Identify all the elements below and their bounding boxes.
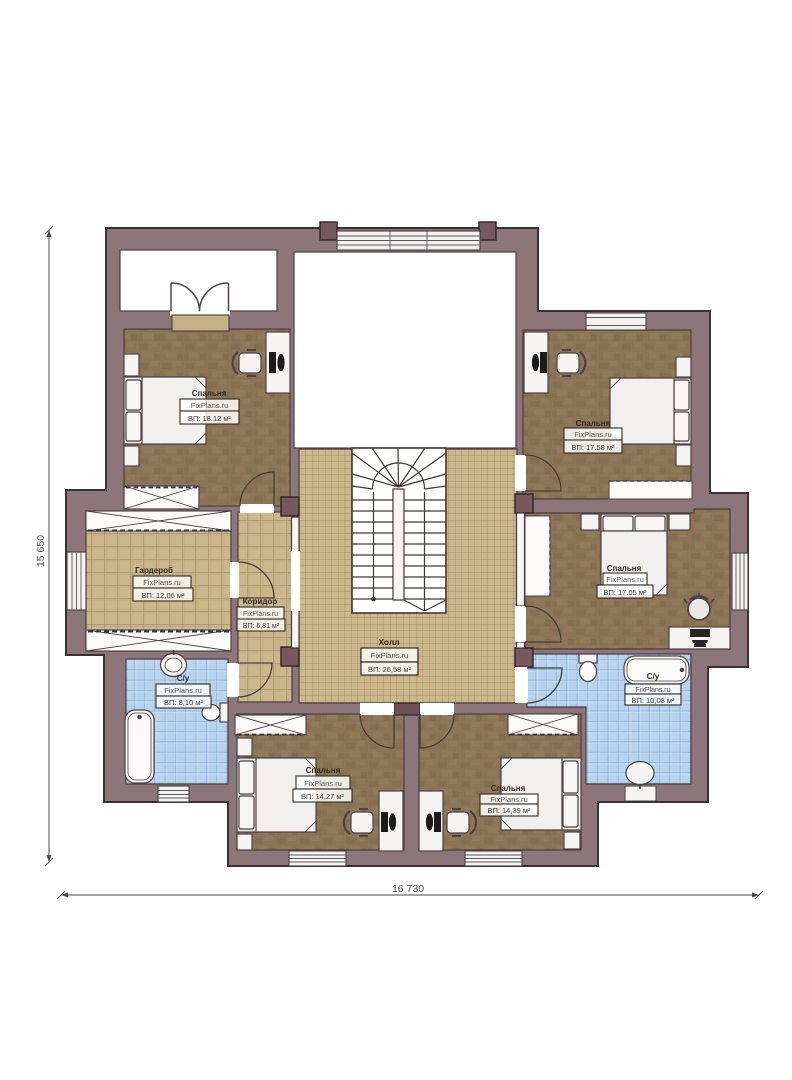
svg-text:ВП: 14,27 м²: ВП: 14,27 м² xyxy=(301,792,345,801)
svg-text:Спальня: Спальня xyxy=(192,389,227,398)
svg-text:Спальня: Спальня xyxy=(607,564,642,573)
svg-text:Гардероб: Гардероб xyxy=(135,566,173,575)
svg-text:FixPlans.ru: FixPlans.ru xyxy=(574,430,612,439)
svg-text:Спальня: Спальня xyxy=(491,784,526,793)
svg-text:FixPlans.ru: FixPlans.ru xyxy=(243,611,278,618)
svg-text:FixPlans.ru: FixPlans.ru xyxy=(371,651,409,660)
svg-text:Коридор: Коридор xyxy=(243,597,278,606)
svg-text:FixPlans.ru: FixPlans.ru xyxy=(606,575,644,584)
svg-text:ВП: 17.58 м²: ВП: 17.58 м² xyxy=(571,443,615,452)
svg-text:16 730: 16 730 xyxy=(392,883,424,895)
svg-text:ВП: 26,58 м²: ВП: 26,58 м² xyxy=(368,665,412,674)
svg-text:ВП: 18.12 м²: ВП: 18.12 м² xyxy=(188,414,232,423)
svg-text:FixPlans.ru: FixPlans.ru xyxy=(304,779,342,788)
svg-text:ВП: 6,81 м²: ВП: 6,81 м² xyxy=(243,623,280,630)
svg-text:15 650: 15 650 xyxy=(35,535,47,567)
svg-text:Спальня: Спальня xyxy=(306,766,341,775)
svg-text:Спальня: Спальня xyxy=(576,419,611,428)
svg-text:FixPlans.ru: FixPlans.ru xyxy=(143,578,181,587)
svg-text:ВП: 10,08 м²: ВП: 10,08 м² xyxy=(631,696,675,705)
svg-text:ВП: 14,39 м²: ВП: 14,39 м² xyxy=(487,806,531,815)
svg-text:FixPlans.ru: FixPlans.ru xyxy=(490,795,528,804)
svg-text:ВП: 8,10 м²: ВП: 8,10 м² xyxy=(164,698,203,707)
svg-text:FixPlans.ru: FixPlans.ru xyxy=(191,401,229,410)
svg-text:ВП: 17.05 м²: ВП: 17.05 м² xyxy=(603,588,647,597)
svg-text:Холл: Холл xyxy=(378,637,399,647)
svg-text:С/у: С/у xyxy=(177,674,190,683)
svg-text:FixPlans.ru: FixPlans.ru xyxy=(635,687,670,694)
svg-text:ВП: 12,06 м²: ВП: 12,06 м² xyxy=(141,591,185,600)
svg-text:С/у: С/у xyxy=(647,672,660,681)
svg-text:FixPlans.ru: FixPlans.ru xyxy=(164,686,202,695)
